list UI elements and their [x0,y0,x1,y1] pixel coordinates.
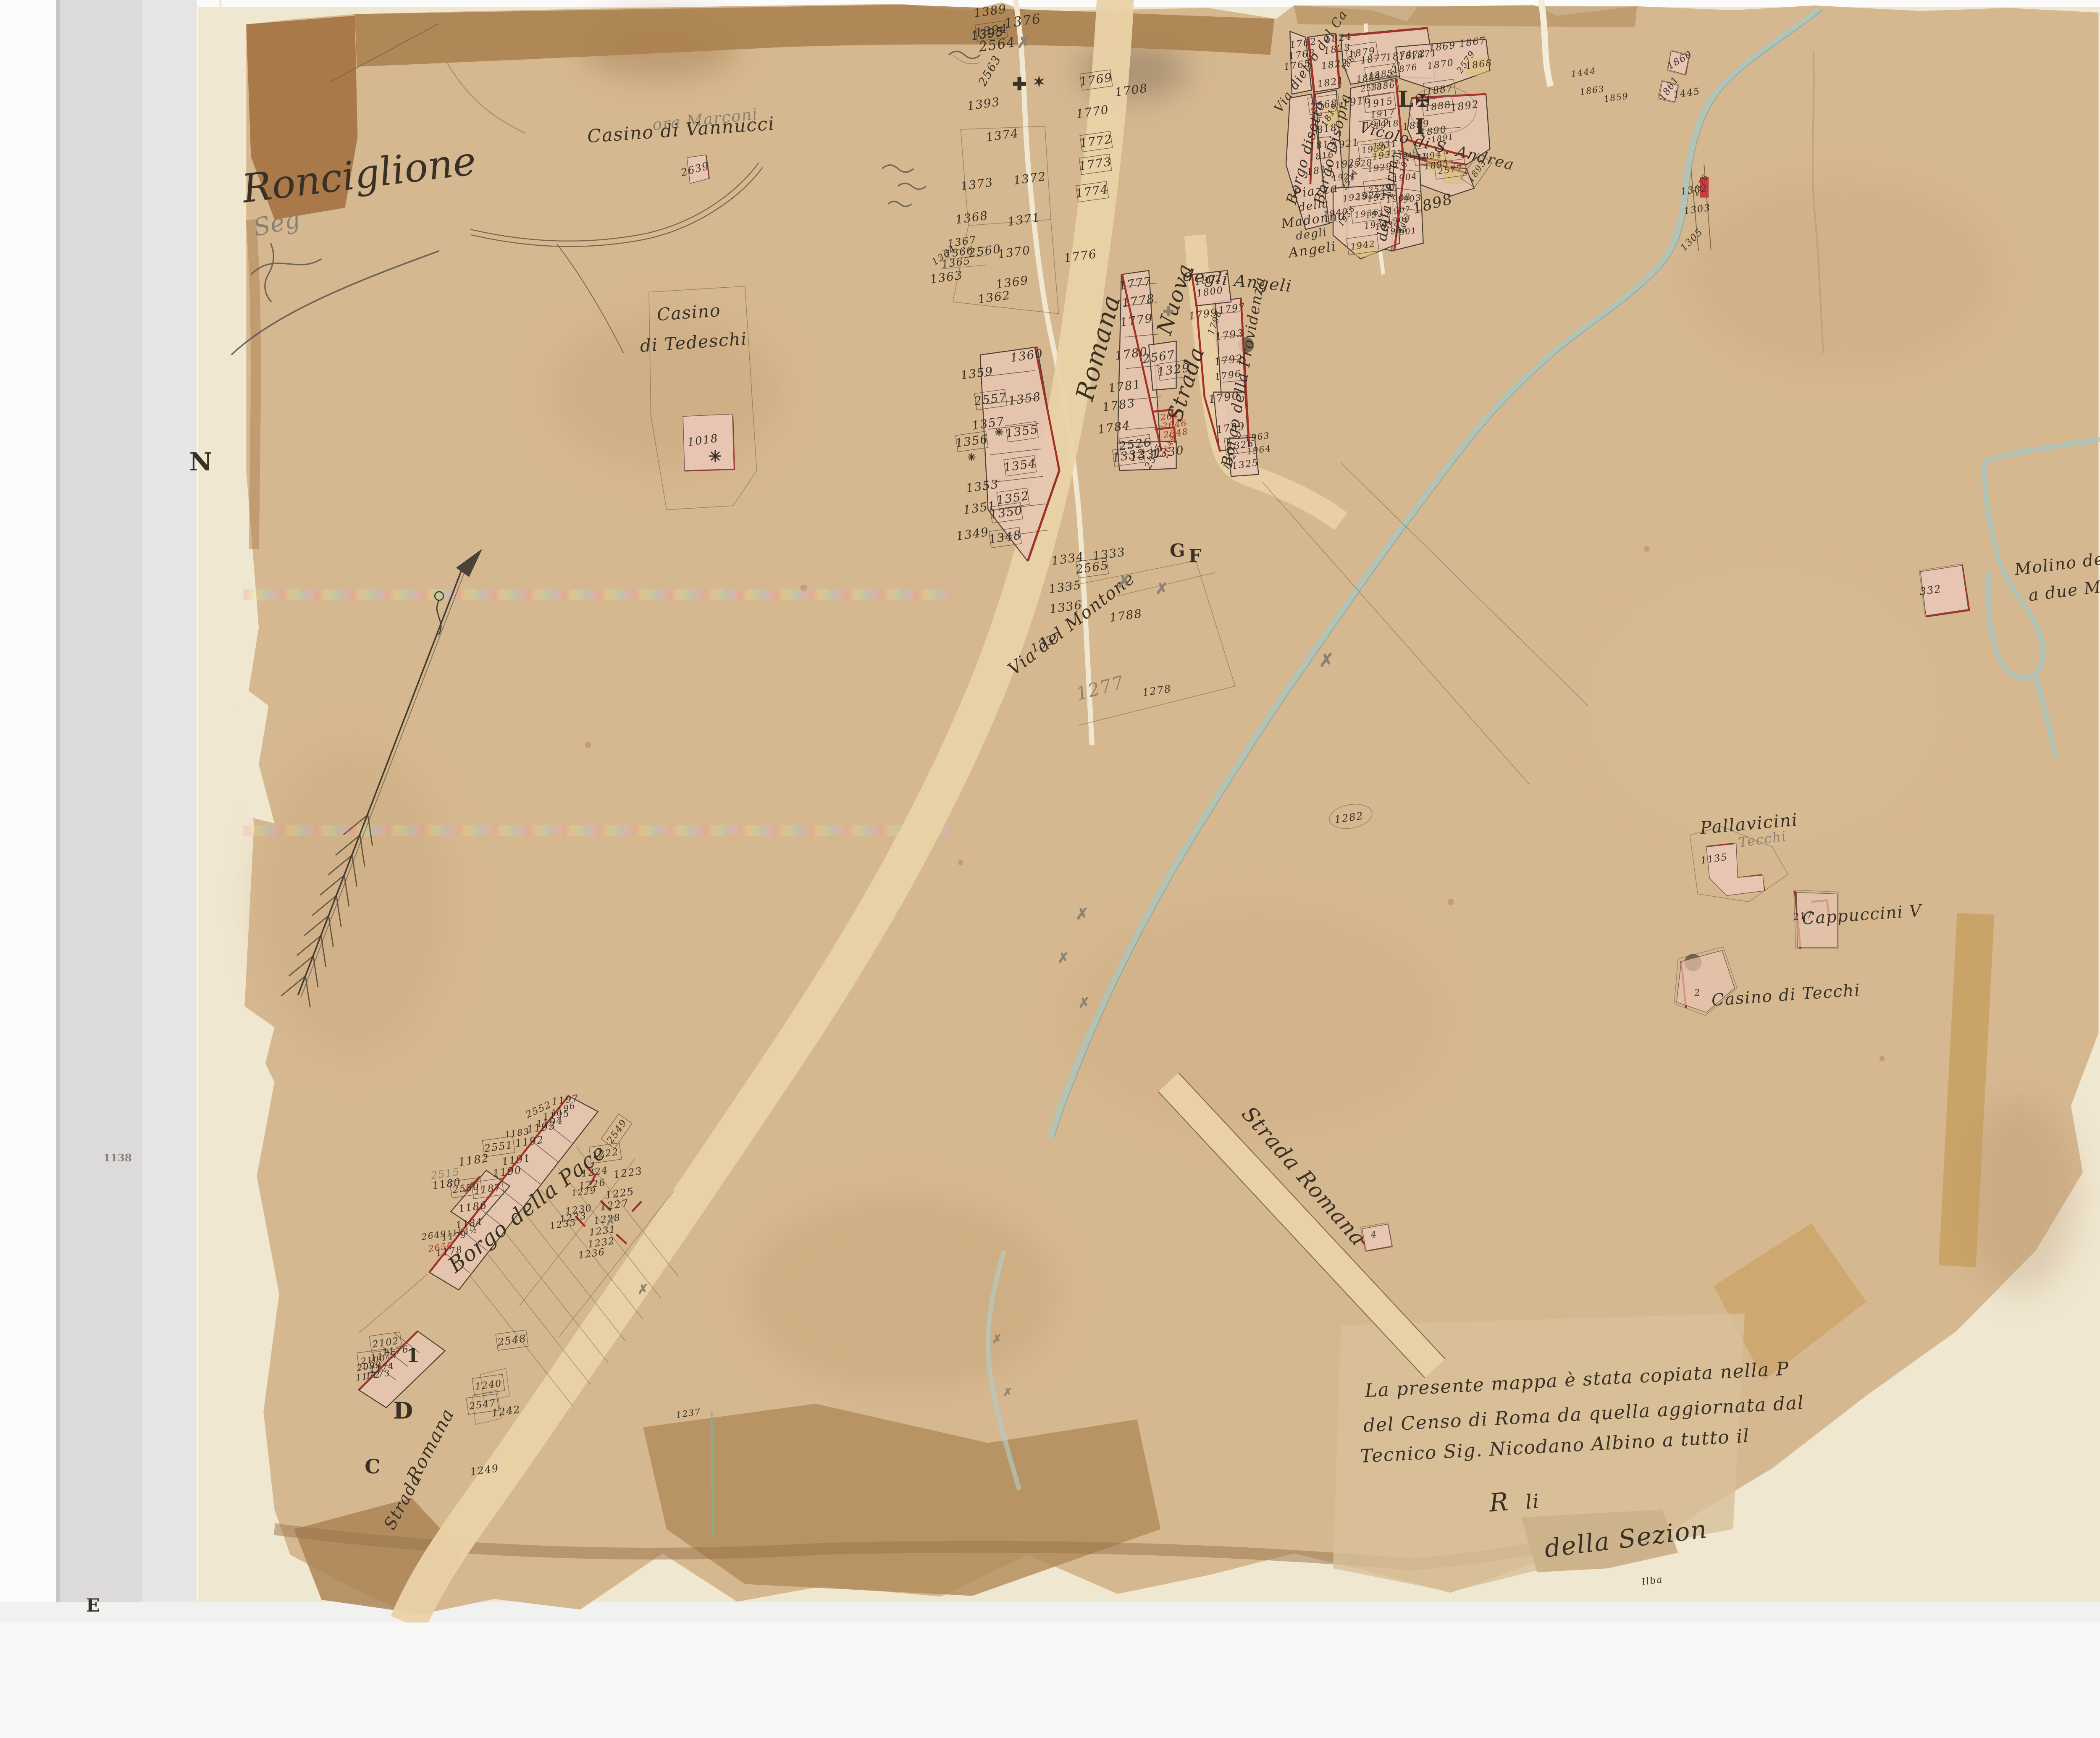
left-strip [60,0,142,1622]
symbol-icon: ✗ [992,1332,1002,1346]
symbol-icon: ✳ [995,426,1004,439]
symbol-icon: ✗ [1058,949,1069,966]
left-strip-edge [56,0,60,1622]
symbol-icon: ✳ [709,447,722,466]
symbol-icon: ✗ [1017,33,1030,52]
symbol-icon: ✗ [1076,905,1089,923]
letter: G [1170,541,1185,562]
symbol-icon: ✳ [967,451,976,463]
cadastral-map: Ronciglione Seg 139513891394256413762563… [0,0,2100,1622]
letter: F [1189,546,1201,567]
symbol-icon: ✚ [1163,304,1174,319]
letter: C [365,1455,380,1478]
left-strip-light [142,0,197,1622]
letter: I [1415,114,1425,139]
letter: 1138 [103,1152,132,1164]
letter: N [189,447,213,477]
inscription-line: R [1488,1488,1510,1518]
symbol-icon: ✗ [1117,571,1131,591]
symbol-icon: ✚ [1012,74,1026,95]
inscription-line: li [1525,1490,1540,1514]
map-stage: Ronciglione Seg 139513891394256413762563… [0,0,2100,1622]
symbol-icon: ✗ [638,1282,649,1297]
letter: E [86,1595,100,1616]
letter: L [1398,87,1413,112]
symbol-icon: ✠ [1415,90,1430,111]
scan-glitch-band [243,589,949,600]
symbol-icon: ✗ [1003,1386,1012,1399]
bottom-margin [0,1602,2100,1622]
letter: D [393,1397,413,1424]
symbol-icon: ✗ [1078,994,1090,1011]
symbol-icon: ✗ [606,1214,616,1229]
symbol-icon: ✗ [1319,650,1334,671]
symbol-icon: ✶ [1033,74,1045,91]
letter: 1 [406,1344,419,1367]
symbol-icon: ✗ [1155,579,1168,598]
